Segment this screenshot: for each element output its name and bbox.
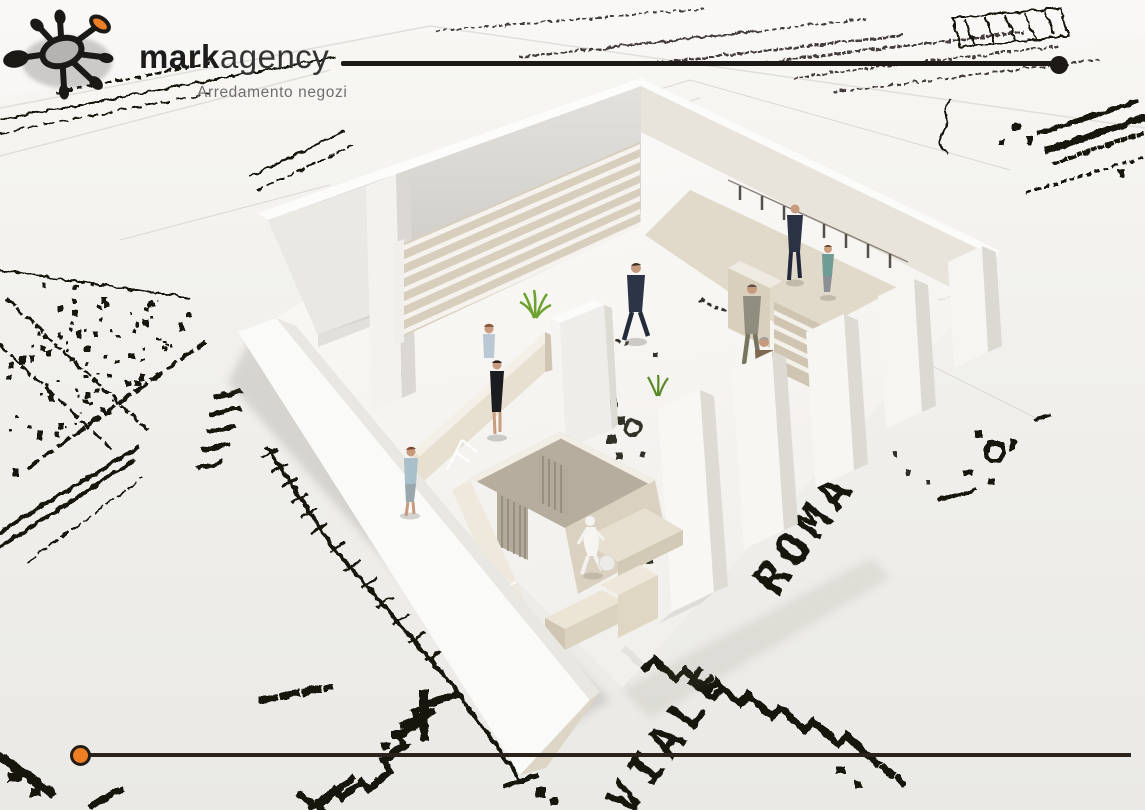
bottom-rule-start-dot — [70, 745, 91, 766]
scene-canvas: VIALE ROMA — [0, 0, 1145, 810]
top-rule-end-dot — [1050, 56, 1068, 74]
bottom-rule-line — [84, 753, 1131, 757]
logo-wordmark: markagency — [139, 38, 329, 76]
person-clerk-woman — [483, 324, 495, 358]
presentation-board: VIALE ROMA — [0, 0, 1145, 810]
logo-word-light: agency — [220, 38, 329, 75]
top-rule-line — [341, 61, 1053, 66]
logo-tagline: Arredamento negozi — [197, 84, 347, 102]
freestanding-column — [550, 300, 618, 448]
splat-asterisk-icon — [0, 0, 130, 108]
logo-word-bold: mark — [139, 38, 220, 75]
